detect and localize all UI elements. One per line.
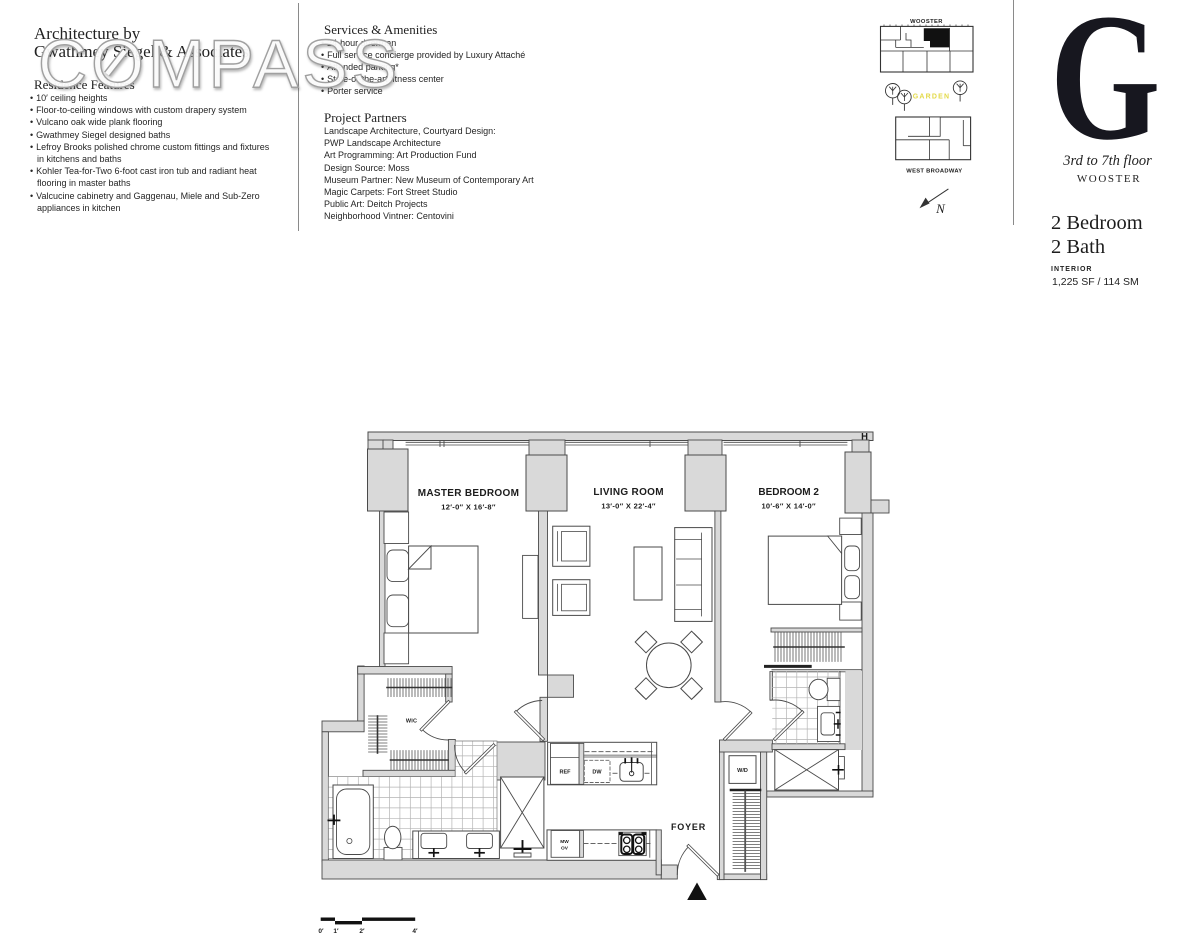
svg-text:GARDEN: GARDEN — [913, 94, 951, 101]
svg-text:0′: 0′ — [318, 928, 324, 935]
svg-text:WIC: WIC — [406, 719, 417, 725]
svg-text:W/D: W/D — [737, 768, 748, 774]
svg-text:WEST BROADWAY: WEST BROADWAY — [906, 169, 962, 175]
svg-text:1′: 1′ — [333, 928, 339, 935]
svg-text:MASTER BEDROOM: MASTER BEDROOM — [418, 488, 519, 499]
svg-text:DW: DW — [592, 770, 602, 776]
svg-text:10′-6″ X 14′-0″: 10′-6″ X 14′-0″ — [761, 502, 816, 511]
svg-text:N: N — [935, 201, 946, 216]
svg-text:4′: 4′ — [412, 928, 418, 935]
svg-text:MW: MW — [560, 839, 569, 845]
svg-text:2′: 2′ — [359, 928, 365, 935]
svg-text:12′-0″ X 16′-8″: 12′-0″ X 16′-8″ — [441, 503, 496, 512]
svg-text:REF: REF — [560, 770, 572, 776]
svg-text:WOOSTER: WOOSTER — [910, 19, 943, 25]
svg-text:13′-0″ X 22′-4″: 13′-0″ X 22′-4″ — [601, 502, 656, 511]
svg-text:H: H — [861, 432, 868, 443]
svg-text:OV: OV — [561, 846, 569, 852]
svg-text:BEDROOM 2: BEDROOM 2 — [758, 487, 819, 498]
svg-text:FOYER: FOYER — [671, 822, 706, 832]
svg-text:LIVING ROOM: LIVING ROOM — [593, 487, 664, 498]
